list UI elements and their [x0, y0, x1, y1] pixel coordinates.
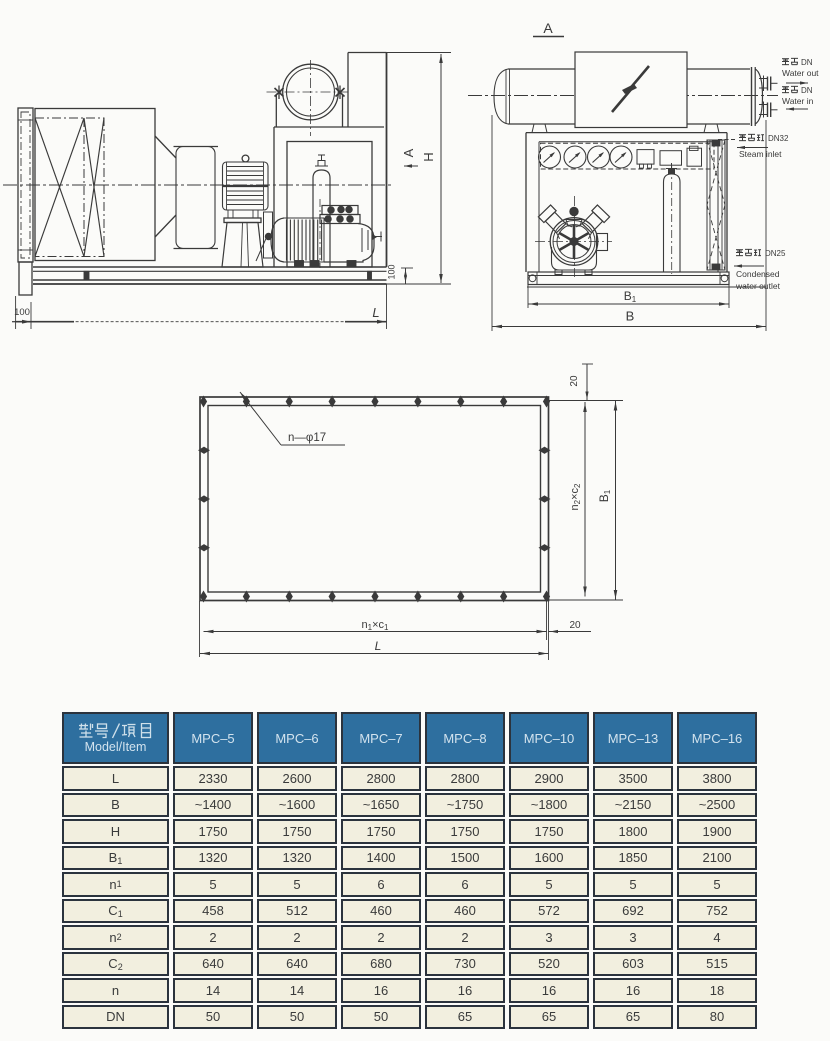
- svg-text:n—φ17: n—φ17: [288, 432, 326, 444]
- svg-text:n1×c1: n1×c1: [362, 619, 390, 632]
- svg-text:DN: DN: [801, 58, 813, 67]
- svg-text:20: 20: [569, 620, 581, 631]
- svg-text:Steam inlet: Steam inlet: [739, 149, 782, 159]
- svg-text:20: 20: [569, 375, 580, 387]
- svg-text:H: H: [421, 152, 436, 161]
- svg-text:DN25: DN25: [765, 249, 786, 258]
- svg-text:DN32: DN32: [768, 134, 789, 143]
- svg-text:n2×c2: n2×c2: [569, 483, 582, 511]
- svg-text:water outlet: water outlet: [735, 281, 781, 291]
- svg-text:100: 100: [387, 264, 397, 279]
- svg-text:A: A: [543, 20, 553, 36]
- svg-text:B1: B1: [624, 289, 637, 304]
- svg-text:Water in: Water in: [782, 96, 814, 106]
- svg-text:L: L: [372, 305, 379, 320]
- svg-text:A: A: [401, 148, 416, 157]
- svg-text:100: 100: [14, 307, 30, 318]
- svg-text:DN: DN: [801, 86, 813, 95]
- svg-text:L: L: [375, 639, 382, 653]
- svg-text:Condensed: Condensed: [736, 269, 780, 279]
- svg-text:B1: B1: [597, 489, 612, 502]
- svg-text:B: B: [626, 309, 635, 324]
- svg-text:Water out: Water out: [782, 68, 819, 78]
